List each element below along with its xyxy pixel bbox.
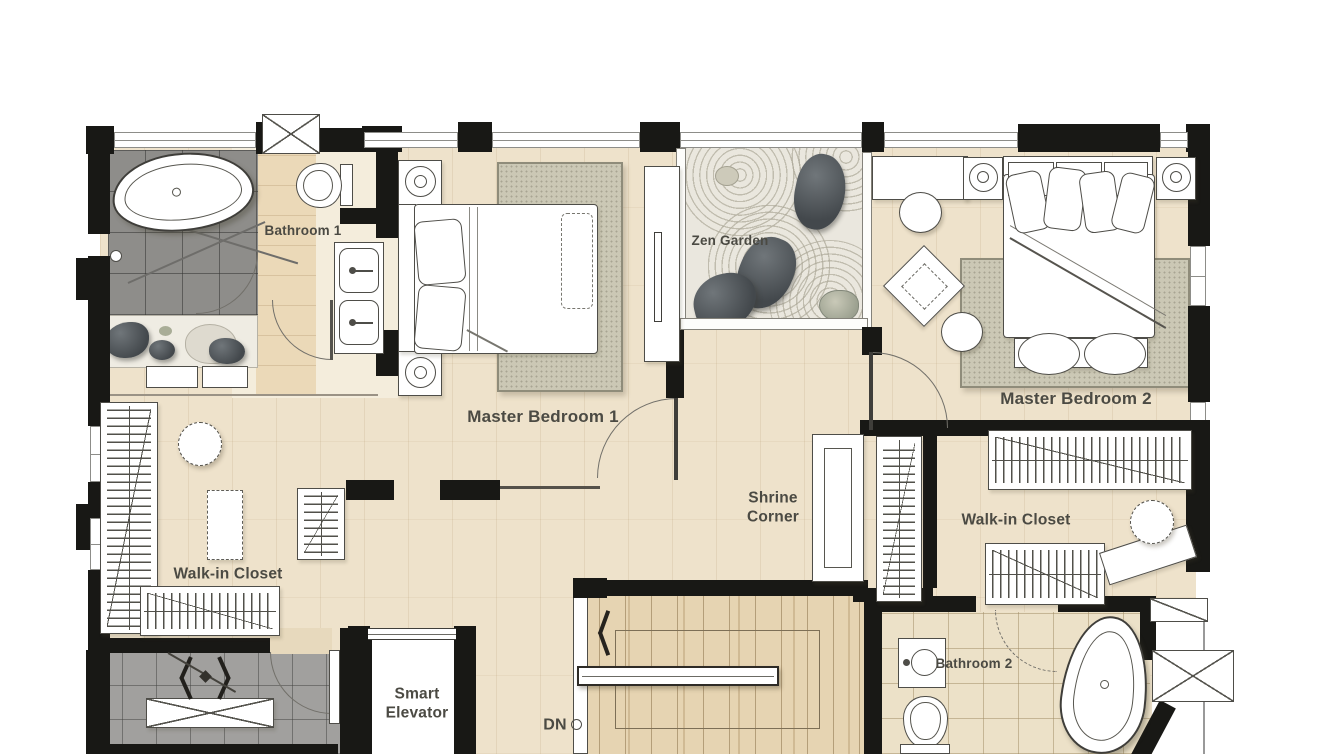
sink-1 — [339, 248, 379, 293]
wall-segment — [458, 122, 492, 152]
wall-segment — [1188, 306, 1210, 402]
tub-inner — [121, 158, 244, 226]
tv-screen — [654, 232, 662, 322]
label-bathroom1: Bathroom 1 — [264, 223, 341, 239]
rock — [149, 340, 175, 360]
label-walk-in-closet-left: Walk-in Closet — [173, 566, 282, 585]
top-window — [492, 132, 640, 148]
bench-cushion — [1018, 333, 1080, 375]
corridor-line — [500, 486, 600, 489]
top-window — [1160, 132, 1188, 148]
pillow — [413, 284, 466, 352]
right-window — [1190, 246, 1206, 306]
round-side-table — [941, 312, 983, 352]
bath-bench — [202, 366, 248, 388]
clothes-rack — [297, 488, 345, 560]
wall-segment — [340, 208, 398, 224]
toilet-seat — [303, 170, 333, 201]
wall-segment — [862, 122, 884, 152]
duvet-panel — [561, 213, 593, 309]
bathroom1-door-leaf — [330, 300, 333, 360]
round-stool — [899, 192, 942, 233]
wall-segment — [573, 578, 607, 598]
utility-door-leaf — [329, 650, 340, 724]
wall-segment — [923, 436, 937, 588]
zen-sill — [680, 318, 868, 330]
top-window — [884, 132, 1018, 148]
dn-marker — [571, 719, 582, 730]
wall-stub — [76, 258, 88, 300]
label-bathroom2: Bathroom 2 — [935, 656, 1012, 672]
elevator-door — [368, 628, 456, 640]
wall-segment — [88, 126, 110, 234]
wall-segment — [108, 638, 274, 653]
basin — [911, 649, 938, 676]
zen-pebble — [715, 166, 739, 186]
wall-segment — [86, 650, 110, 754]
clothes-rack — [988, 430, 1192, 490]
rock — [209, 338, 245, 364]
wall-segment — [318, 128, 364, 152]
top-window — [680, 132, 862, 148]
label-zen-garden: Zen Garden — [691, 233, 768, 249]
stair-direction-arrow — [598, 608, 620, 658]
wall-segment — [1018, 124, 1160, 152]
wall-segment — [86, 744, 338, 754]
wall-segment — [88, 256, 110, 368]
faucet-dot — [903, 659, 910, 666]
ac-condenser-unit — [1152, 650, 1234, 702]
wall-stub — [76, 504, 90, 550]
lamp-inner — [1170, 171, 1182, 183]
fan-blade — [179, 676, 192, 700]
fan-icon — [160, 652, 250, 702]
closet-bench — [207, 490, 243, 560]
toilet-2-bowl — [903, 696, 948, 748]
wall-segment — [440, 480, 500, 500]
lamp-inner — [977, 171, 989, 183]
label-master-bedroom2: Master Bedroom 2 — [1000, 389, 1152, 409]
wall-segment — [1186, 124, 1210, 152]
toilet-seat — [910, 702, 941, 740]
lamp-inner — [414, 366, 427, 379]
utility-bench — [146, 698, 274, 728]
zen-glass-right — [862, 152, 872, 328]
tv-console — [644, 166, 680, 362]
vent-louver — [1150, 598, 1208, 622]
wall-stub — [862, 327, 882, 355]
duvet-line — [477, 207, 478, 351]
bench-cushion — [1084, 333, 1146, 375]
wall-segment — [791, 580, 868, 596]
pouf — [1130, 500, 1174, 544]
wall-segment — [640, 122, 680, 152]
faucet-bar — [355, 322, 373, 324]
skylight-window — [262, 114, 320, 154]
pillow — [413, 218, 466, 286]
toilet-2-tank — [900, 744, 950, 754]
elevator-wall-left — [348, 626, 370, 754]
bathroom1-bottom-line — [96, 394, 378, 396]
shrine-inner — [824, 448, 852, 568]
label-shrine-corner: Shrine Corner — [729, 489, 817, 526]
stair-handrail — [577, 666, 779, 686]
wall-segment — [607, 580, 793, 596]
sink-2 — [339, 300, 379, 345]
clothes-rack — [876, 436, 922, 602]
shower-head — [110, 250, 122, 262]
duvet-diagonal — [1010, 237, 1167, 328]
clothes-rack — [985, 543, 1105, 605]
floor-plan: Bathroom 1 Zen Garden Master Bedroom 1 M… — [0, 0, 1342, 754]
top-window — [114, 132, 256, 148]
wall-segment — [346, 480, 394, 500]
fold-line — [467, 329, 508, 352]
rock — [105, 322, 149, 358]
clothes-rack — [140, 586, 280, 636]
bedroom1-door-leaf — [674, 398, 678, 480]
faucet-bar — [355, 270, 373, 272]
pebble-garden — [96, 315, 258, 368]
bedroom2-door-leaf — [869, 352, 873, 430]
label-walk-in-closet-right: Walk-in Closet — [961, 512, 1070, 531]
label-stairs-dn: DN — [543, 715, 567, 734]
arrow-bar — [598, 631, 610, 656]
handrail-line — [582, 676, 774, 677]
lamp-inner — [414, 175, 427, 188]
pouf — [178, 422, 222, 466]
moss — [159, 326, 172, 336]
bath-bench — [146, 366, 198, 388]
label-smart-elevator: Smart Elevator — [373, 685, 461, 722]
duvet-diagonal — [1010, 225, 1166, 316]
wall-segment — [864, 594, 882, 754]
label-master-bedroom1: Master Bedroom 1 — [467, 407, 619, 427]
toilet-1-bowl — [296, 163, 342, 208]
elevator-door-line — [368, 634, 456, 635]
shrine-cabinet — [812, 434, 864, 582]
top-window — [364, 132, 458, 148]
